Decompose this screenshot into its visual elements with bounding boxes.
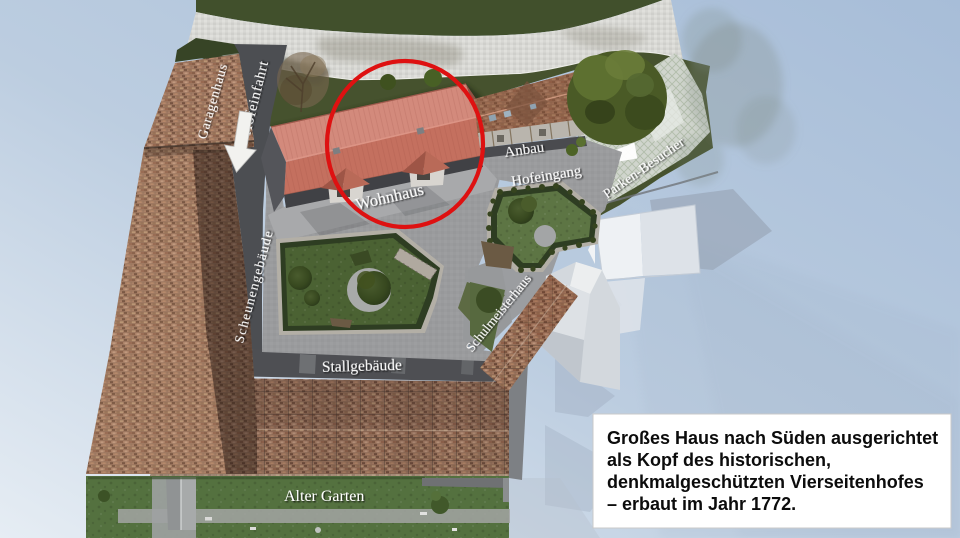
svg-text:Großes Haus nach Süden ausgeri: Großes Haus nach Süden ausgerichtet bbox=[607, 428, 938, 448]
svg-text:Stallgebäude: Stallgebäude bbox=[322, 357, 403, 376]
svg-text:denkmalgeschützten Vierseitenh: denkmalgeschützten Vierseitenhofes bbox=[607, 472, 924, 492]
svg-text:als Kopf des historischen,: als Kopf des historischen, bbox=[607, 450, 831, 470]
svg-text:Alter Garten: Alter Garten bbox=[284, 488, 364, 505]
svg-text:– erbaut im Jahr 1772.: – erbaut im Jahr 1772. bbox=[607, 494, 796, 514]
